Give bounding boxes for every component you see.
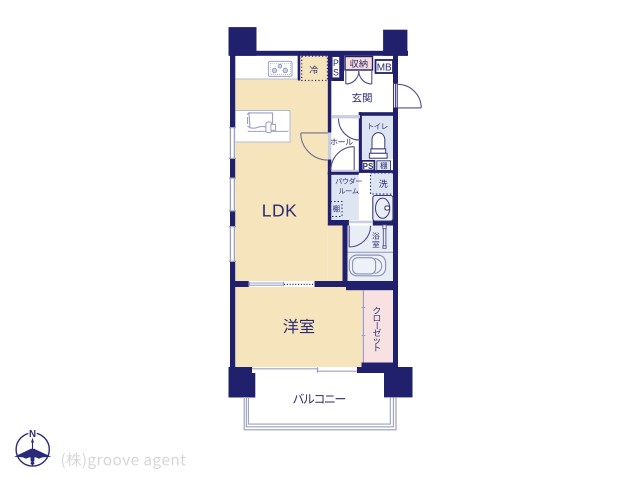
- svg-text:MB: MB: [377, 62, 392, 73]
- svg-text:S: S: [333, 68, 339, 78]
- svg-text:PS: PS: [363, 162, 374, 171]
- svg-text:LDK: LDK: [262, 201, 298, 221]
